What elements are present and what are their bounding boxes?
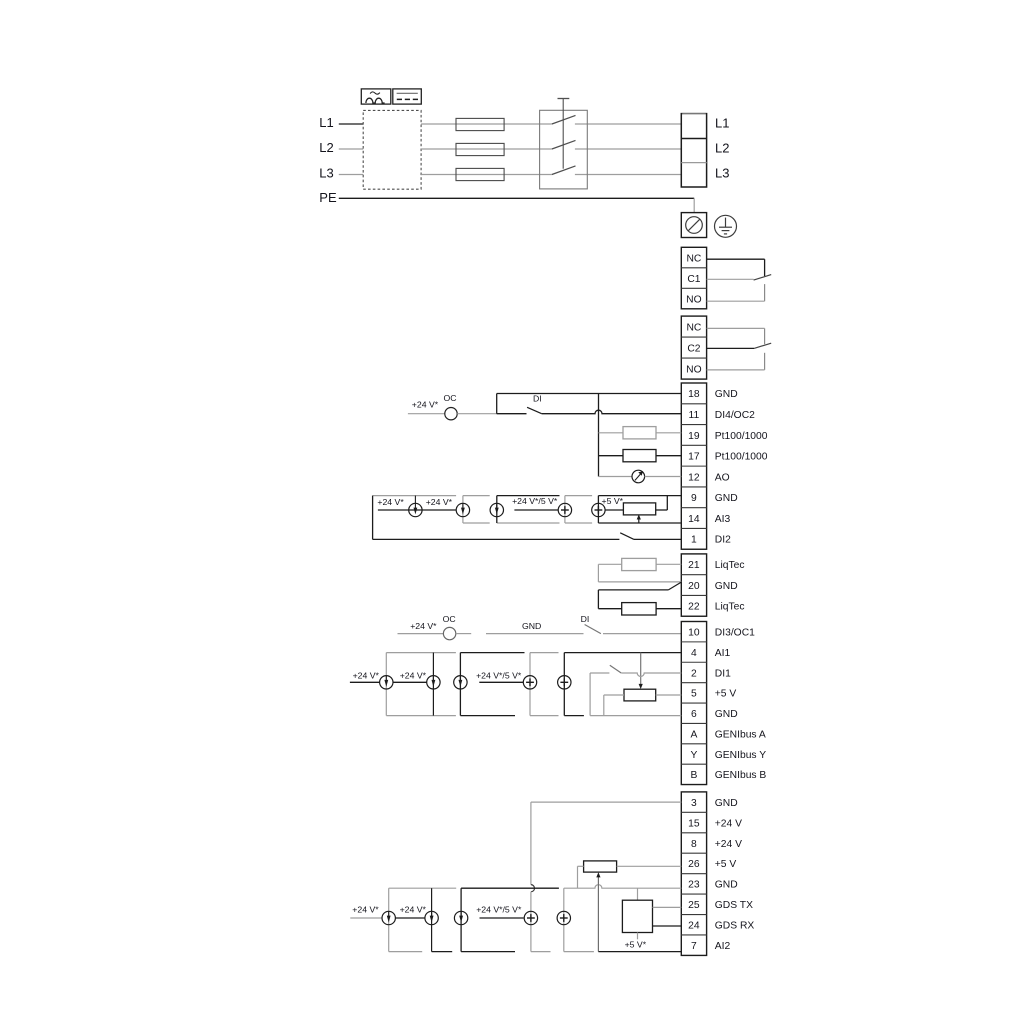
svg-text:+24 V*: +24 V*: [352, 905, 379, 915]
svg-text:AI2: AI2: [715, 941, 731, 952]
svg-text:12: 12: [688, 472, 700, 483]
svg-text:21: 21: [688, 560, 700, 571]
svg-text:2: 2: [691, 668, 697, 679]
svg-text:+24 V*: +24 V*: [400, 670, 427, 680]
svg-text:15: 15: [688, 818, 700, 829]
svg-text:PE: PE: [319, 190, 337, 205]
svg-text:GENIbus B: GENIbus B: [715, 770, 767, 781]
svg-text:LiqTec: LiqTec: [715, 560, 745, 571]
svg-text:18: 18: [688, 389, 700, 400]
svg-text:10: 10: [688, 627, 700, 638]
svg-text:+5 V: +5 V: [715, 689, 737, 700]
svg-text:17: 17: [688, 452, 700, 463]
svg-text:5: 5: [691, 689, 697, 700]
svg-text:L1: L1: [715, 116, 729, 131]
svg-text:GND: GND: [715, 709, 738, 720]
svg-text:23: 23: [688, 880, 700, 891]
svg-text:GND: GND: [522, 621, 541, 631]
svg-text:3: 3: [691, 798, 697, 809]
svg-text:GDS RX: GDS RX: [715, 921, 755, 932]
svg-text:24: 24: [688, 921, 700, 932]
svg-text:+24 V*: +24 V*: [412, 400, 439, 410]
svg-text:+24 V*: +24 V*: [400, 905, 427, 915]
svg-text:GND: GND: [715, 581, 738, 592]
svg-text:AI3: AI3: [715, 514, 731, 525]
svg-text:DI: DI: [581, 614, 590, 624]
svg-text:+24 V*: +24 V*: [426, 497, 453, 507]
svg-text:GENIbus A: GENIbus A: [715, 729, 766, 740]
svg-text:8: 8: [691, 839, 697, 850]
svg-text:L3: L3: [715, 166, 729, 181]
svg-text:DI1: DI1: [715, 668, 731, 679]
svg-text:1: 1: [691, 535, 697, 546]
svg-text:NC: NC: [686, 322, 701, 333]
svg-text:GND: GND: [715, 493, 738, 504]
svg-text:AI1: AI1: [715, 648, 731, 659]
svg-text:NC: NC: [686, 253, 701, 264]
svg-text:NO: NO: [686, 364, 701, 375]
svg-text:B: B: [690, 770, 697, 781]
svg-text:C1: C1: [687, 274, 700, 285]
svg-text:GND: GND: [715, 798, 738, 809]
svg-text:L2: L2: [715, 140, 729, 155]
svg-text:OC: OC: [443, 614, 456, 624]
svg-text:GDS TX: GDS TX: [715, 900, 753, 911]
svg-text:Y: Y: [690, 750, 697, 761]
svg-text:19: 19: [688, 431, 700, 442]
svg-text:25: 25: [688, 900, 700, 911]
svg-text:L1: L1: [319, 115, 333, 130]
svg-text:+5 V*: +5 V*: [625, 939, 647, 949]
svg-text:A: A: [690, 729, 697, 740]
svg-text:7: 7: [691, 941, 697, 952]
svg-text:+24 V*: +24 V*: [410, 621, 437, 631]
svg-text:26: 26: [688, 859, 700, 870]
svg-text:NO: NO: [686, 294, 701, 305]
svg-text:Pt100/1000: Pt100/1000: [715, 452, 768, 463]
svg-text:6: 6: [691, 709, 697, 720]
svg-text:DI: DI: [533, 394, 542, 404]
svg-text:+24 V*: +24 V*: [377, 497, 404, 507]
svg-text:DI3/OC1: DI3/OC1: [715, 627, 755, 638]
svg-text:+24 V*: +24 V*: [353, 670, 380, 680]
svg-text:C2: C2: [687, 343, 700, 354]
svg-text:14: 14: [688, 514, 700, 525]
svg-text:OC: OC: [444, 393, 457, 403]
svg-text:+24 V*/5 V*: +24 V*/5 V*: [476, 670, 522, 680]
svg-text:+24 V*/5 V*: +24 V*/5 V*: [512, 496, 558, 506]
svg-text:AO: AO: [715, 472, 730, 483]
svg-text:L3: L3: [319, 166, 333, 181]
svg-text:11: 11: [689, 410, 700, 421]
svg-text:+5 V*: +5 V*: [602, 496, 624, 506]
svg-text:GND: GND: [715, 880, 738, 891]
svg-text:22: 22: [688, 602, 700, 613]
svg-text:+24 V: +24 V: [715, 818, 742, 829]
svg-text:GND: GND: [715, 389, 738, 400]
svg-text:+24 V: +24 V: [715, 839, 742, 850]
svg-text:DI2: DI2: [715, 535, 731, 546]
svg-text:+24 V*/5 V*: +24 V*/5 V*: [476, 905, 522, 915]
svg-text:GENIbus Y: GENIbus Y: [715, 750, 766, 761]
svg-text:+5 V: +5 V: [715, 859, 737, 870]
svg-text:20: 20: [688, 581, 700, 592]
svg-text:LiqTec: LiqTec: [715, 602, 745, 613]
svg-text:9: 9: [691, 493, 697, 504]
svg-text:Pt100/1000: Pt100/1000: [715, 431, 768, 442]
svg-text:4: 4: [691, 648, 697, 659]
svg-text:DI4/OC2: DI4/OC2: [715, 410, 755, 421]
svg-text:L2: L2: [319, 140, 333, 155]
